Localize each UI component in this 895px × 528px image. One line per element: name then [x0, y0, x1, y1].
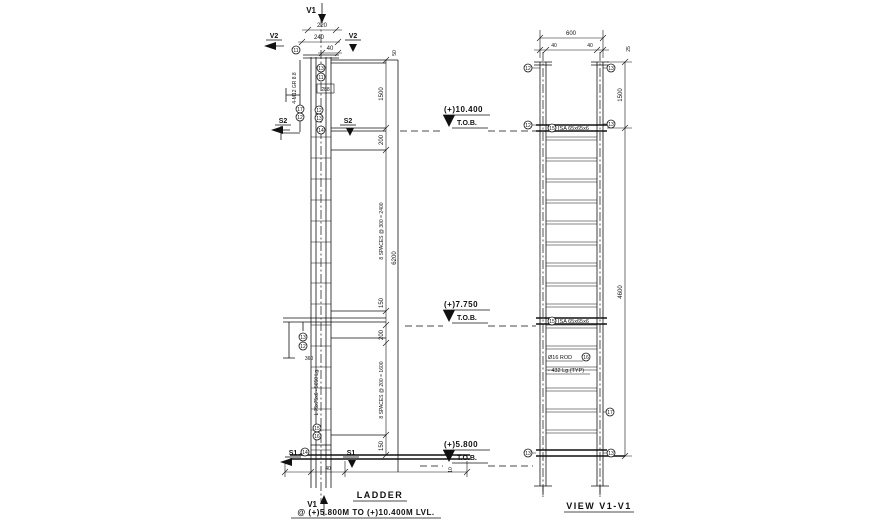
- svg-text:T.O.B.: T.O.B.: [457, 455, 477, 462]
- dim-40-right: 40: [587, 43, 593, 49]
- svg-text:16: 16: [583, 355, 589, 361]
- dim-220: 220: [317, 23, 328, 29]
- svg-text:14: 14: [318, 128, 324, 134]
- dim-1500-section: 1500: [618, 88, 624, 102]
- svg-text:15: 15: [549, 126, 555, 132]
- section-mark-v2-right: V2: [345, 33, 361, 52]
- svg-text:12: 12: [525, 123, 531, 129]
- svg-text:15: 15: [549, 319, 555, 325]
- svg-text:13: 13: [608, 122, 614, 128]
- ladder-drawing: 220 240 40 1500 200 8 SPACES @ 300 = 240…: [0, 0, 895, 528]
- dim-section-top: 600 40 40 25: [534, 30, 632, 58]
- dim-150-mid: 150: [379, 297, 385, 308]
- svg-text:17: 17: [607, 410, 613, 416]
- svg-text:(+)5.800: (+)5.800: [444, 440, 478, 449]
- dim-4600-section: 4600: [618, 285, 624, 299]
- title-ladder: LADDER: [357, 490, 404, 500]
- rung-pitch-dim: 288: [321, 87, 330, 93]
- bracket-dim: 360: [305, 356, 314, 362]
- dim-200-upper: 200: [379, 134, 385, 145]
- dim-600: 600: [566, 31, 577, 37]
- rung-note: Ø16 ROD 16 - 432 Lg.(TYP): [546, 353, 590, 374]
- landing-angle-note-upper: 15 ISA 65x65x6: [548, 124, 589, 132]
- dim-25-edge: 25: [626, 46, 632, 52]
- svg-text:S2: S2: [344, 118, 353, 125]
- svg-text:13: 13: [316, 116, 322, 122]
- svg-text:V2: V2: [349, 33, 358, 40]
- dim-1500: 1500: [379, 87, 385, 101]
- level-marker-5800: (+)5.800 T.O.B.: [420, 440, 533, 466]
- svg-text:16: 16: [314, 434, 320, 440]
- dim-bottom: 40 10: [282, 461, 470, 477]
- svg-text:13: 13: [300, 335, 306, 341]
- svg-text:S2: S2: [279, 118, 288, 125]
- elevation-view: 220 240 40 1500 200 8 SPACES @ 300 = 240…: [264, 3, 470, 516]
- dim-40-top: 40: [327, 46, 334, 52]
- svg-text:(+)7.750: (+)7.750: [444, 300, 478, 309]
- title-section: VIEW V1-V1: [564, 501, 634, 512]
- svg-text:S1: S1: [289, 450, 298, 457]
- svg-text:13: 13: [608, 451, 614, 457]
- level-marker-7750: (+)7.750 T.O.B.: [405, 300, 536, 326]
- landing-angle-note-lower: 15 ISA 65x65x6: [548, 317, 589, 325]
- svg-text:ISA 65x65x6: ISA 65x65x6: [558, 319, 589, 325]
- svg-text:12: 12: [525, 66, 531, 72]
- dim-40-left: 40: [551, 43, 557, 49]
- dim-spaces-lower: 8 SPACES @ 200 = 1600: [379, 361, 385, 418]
- dim-top: 220 240 40: [298, 23, 342, 56]
- svg-text:(+)10.400: (+)10.400: [444, 105, 483, 114]
- dim-240: 240: [314, 35, 325, 41]
- svg-text:13: 13: [608, 66, 614, 72]
- bolt-note: 4-M12 GR 8.8: [292, 72, 298, 104]
- svg-text:13: 13: [525, 451, 531, 457]
- svg-text:11: 11: [318, 75, 323, 81]
- title-ladder-sub: @ (+)5.800M TO (+)10.400M LVL.: [297, 508, 434, 517]
- dim-50-offset: 50: [392, 50, 398, 56]
- svg-text:11: 11: [293, 48, 298, 54]
- svg-text:13: 13: [318, 66, 324, 72]
- callout-bubbles-elevation: 11 13 11 17 12 12 13 14 13 12 15 16 14: [292, 46, 325, 456]
- svg-text:14: 14: [302, 450, 308, 456]
- dim-10-bottom: 10: [448, 467, 454, 473]
- svg-text:Ø16 ROD: Ø16 ROD: [548, 355, 572, 361]
- svg-text:V2: V2: [270, 33, 279, 40]
- section-mark-s1-left: S1: [280, 450, 301, 466]
- svg-text:12: 12: [297, 115, 303, 121]
- dim-section-right: 1500 4600: [607, 59, 632, 459]
- callout-bubbles-section: 12 13 12 13 17 13 13: [524, 64, 615, 457]
- svg-text:V1: V1: [306, 6, 316, 15]
- svg-text:15: 15: [314, 426, 320, 432]
- svg-text:T.O.B.: T.O.B.: [457, 315, 477, 322]
- dim-150-bottom: 150: [379, 440, 385, 451]
- dim-spaces-upper: 8 SPACES @ 300 = 2400: [379, 202, 385, 259]
- title-view-v1: VIEW V1-V1: [566, 501, 632, 511]
- level-marker-10400: (+)10.400 T.O.B.: [400, 105, 537, 131]
- section-view: 600 40 40 25 1500 4600 15 ISA 65x65x6 15…: [524, 30, 632, 497]
- svg-text:17: 17: [297, 107, 303, 113]
- dim-total-left: 6200: [392, 251, 398, 265]
- section-mark-v1-top: V1: [306, 3, 326, 23]
- dim-chain-right: 1500 200 8 SPACES @ 300 = 2400 150 200 8…: [379, 50, 398, 458]
- svg-text:S1: S1: [347, 450, 356, 457]
- svg-text:ISA 65x65x6: ISA 65x65x6: [558, 126, 589, 132]
- dim-200-lower: 200: [379, 329, 385, 340]
- svg-text:12: 12: [316, 108, 322, 114]
- dim-40-bottom: 40: [325, 466, 331, 472]
- section-mark-s2-right: S2: [340, 118, 356, 136]
- svg-text:12: 12: [300, 344, 306, 350]
- svg-text:- 432 Lg.(TYP): - 432 Lg.(TYP): [548, 368, 584, 374]
- section-mark-v2-left: V2: [264, 33, 284, 50]
- svg-text:T.O.B.: T.O.B.: [457, 120, 477, 127]
- stringer-note: L 75x75x6 - 5650 Lg.: [314, 369, 320, 416]
- drawing-sheet: 220 240 40 1500 200 8 SPACES @ 300 = 240…: [0, 0, 895, 528]
